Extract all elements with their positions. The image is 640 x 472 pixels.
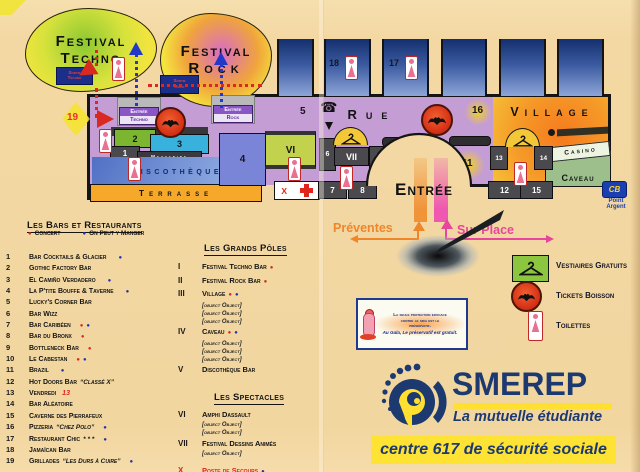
pole-name: Caveau xyxy=(202,326,225,339)
bar-number: 9 xyxy=(6,343,21,352)
bar-number: 12 xyxy=(6,377,21,386)
concert-dot-icon: ● xyxy=(76,357,80,363)
bar-name: Bottleneck Bar xyxy=(29,345,79,352)
poles-list: I Festival Techno Bar ● II Festival Rock… xyxy=(178,261,328,377)
bar-list-item: 2 Gothic Factory Bar xyxy=(6,263,178,274)
bar-list-item: 11 Brazil ● xyxy=(6,365,178,376)
entree-rock-sign: Entrée Rock xyxy=(213,105,253,123)
spectacles-title: Les Spectacles xyxy=(214,392,284,405)
manger-dot-icon: ● xyxy=(234,327,238,340)
edge-shade xyxy=(630,0,640,472)
bar-list-item: 19 Grillades “Les Durs à Cuire” ● xyxy=(6,456,178,467)
sticker-line4: Au Gala, Le préservatif est gratuit. xyxy=(376,329,464,336)
entree-label: Entrée xyxy=(381,180,467,200)
manger-dot-icon: ● xyxy=(82,231,86,237)
entree-techno-line2: Techno xyxy=(120,116,158,124)
condom-mascot-icon xyxy=(360,307,376,341)
cb-card-icon: CB xyxy=(602,181,627,198)
bar-note-red: 13 xyxy=(62,390,70,397)
spectacle-sub-list: [object Object][object Object] xyxy=(178,421,328,437)
prevention-sticker: La seule protection efficace contre le s… xyxy=(356,298,468,350)
toilets-figure-icon xyxy=(528,311,543,341)
bar-note: “Chez Polo” xyxy=(56,424,94,431)
entry-path-techno xyxy=(135,54,138,106)
manger-legend-label: On Peut y Manger xyxy=(89,230,144,237)
pole-sub-item: [object Object] xyxy=(202,310,328,318)
bar-number: 15 xyxy=(6,411,21,420)
bar-number: 16 xyxy=(6,422,21,431)
spectacle-numeral: VII xyxy=(178,438,202,451)
spectacle-sub-item: [object Object] xyxy=(202,450,328,458)
concert-dot-icon: ● xyxy=(88,346,92,352)
preventes-line-arrow-icon xyxy=(350,235,358,243)
pole-item: V Discothèque Bar xyxy=(178,364,328,377)
pole-item: III Village ● ● [object Object][object O… xyxy=(178,288,328,326)
surplace-line-arrow-icon xyxy=(546,235,554,243)
manger-dot-icon: ● xyxy=(235,289,239,302)
toilets-figure-icon xyxy=(340,166,353,190)
bar-number: 19 xyxy=(6,456,21,465)
bar-number: 18 xyxy=(6,445,21,454)
pole-sub-item: [object Object] xyxy=(202,356,328,364)
secours-item: X Poste de Secours ● xyxy=(178,465,328,472)
bar-note: * * * xyxy=(83,436,94,443)
bar-list-item: 8 Bar du Bronx ● xyxy=(6,331,178,342)
entree-techno-line1: Entrée xyxy=(120,108,158,116)
toilettes-label: Toilettes xyxy=(556,321,590,330)
smerep-banner: centre 617 de sécurité sociale xyxy=(371,436,616,464)
pole-numeral: II xyxy=(178,275,202,288)
concert-dot-icon: ● xyxy=(81,334,85,340)
vestiaires-label: Vestiaires Gratuits xyxy=(556,261,627,270)
secours-numeral: X xyxy=(178,465,202,472)
manger-dot-icon: ● xyxy=(103,437,107,443)
poles-title: Les Grands Pôles xyxy=(204,243,287,256)
manger-dot-icon: ● xyxy=(130,459,134,465)
pole-numeral: I xyxy=(178,261,202,274)
spectacle-name: Festival Dessins Animés xyxy=(202,438,276,451)
festival-flyer: 18 17 Caveau Casino 2 3 1 Mezzanine Disc… xyxy=(0,0,640,472)
ink-blob-pointer xyxy=(392,206,507,278)
concert-dot-icon: ● xyxy=(228,327,232,340)
spectacle-item: VII Festival Dessins Animés [object Obje… xyxy=(178,438,328,459)
bar-name: Jamaïcan Bar xyxy=(29,447,71,454)
spectacle-sub-list: [object Object] xyxy=(178,450,328,458)
spectacle-sub-item: [object Object] xyxy=(202,421,328,429)
fold-crease xyxy=(319,0,324,472)
concert-dot-icon: ● xyxy=(264,276,268,289)
entry-arrow-techno-icon xyxy=(129,42,143,55)
smerep-logo-icon xyxy=(376,363,450,437)
concert-dot-icon: ● xyxy=(270,262,274,275)
poles-section: Les Grands Pôles I Festival Techno Bar ●… xyxy=(178,238,328,472)
exit-arrow-icon xyxy=(97,110,114,128)
spectacle-numeral: VI xyxy=(178,409,202,422)
pole-name: Village xyxy=(202,288,225,301)
bar-list-item: 9 Bottleneck Bar ● xyxy=(6,343,178,354)
bar-name: Vendredi xyxy=(29,390,56,397)
manger-dot-icon: ● xyxy=(108,278,112,284)
pole-sub-item: [object Object] xyxy=(202,318,328,326)
manger-dot-icon: ● xyxy=(261,466,265,472)
bar-name: Caverne des Pierrafeux xyxy=(29,413,102,420)
drink-token-icon xyxy=(155,107,186,138)
bar-name: Restaurant Chic xyxy=(29,436,80,443)
toilets-figure-icon xyxy=(112,57,125,81)
pole-name: Festival Techno Bar xyxy=(202,261,267,274)
bar-list-item: 17 Restaurant Chic * * * ● xyxy=(6,434,178,445)
bar-list-item: 14 Bar Aléatoire xyxy=(6,399,178,410)
bar-number: 6 xyxy=(6,309,21,318)
smerep-banner-text: centre 617 de sécurité sociale xyxy=(380,441,607,459)
pole-sub-list: [object Object][object Object][object Ob… xyxy=(178,340,328,365)
bar-list-item: 10 Le Cabestan ● ● xyxy=(6,354,178,365)
bar-list-item: 3 El Camiño Verdadero ● xyxy=(6,275,178,286)
bar-list-item: 4 La P'tite Bouffe & Taverne ● xyxy=(6,286,178,297)
spectacle-item: VI Amphi Dassault [object Object][object… xyxy=(178,409,328,438)
preventes-label: Préventes xyxy=(333,221,393,235)
manger-dot-icon: ● xyxy=(86,323,90,329)
concert-legend-label: Concert xyxy=(35,230,61,237)
bar-list-item: 12 Hot Doors Bar “Classé X” xyxy=(6,377,178,388)
pole-sub-item: [object Object] xyxy=(202,348,328,356)
concert-dot-icon: ● xyxy=(228,289,232,302)
pole-numeral: V xyxy=(178,364,202,377)
bar-number: 10 xyxy=(6,354,21,363)
toilets-figure-icon xyxy=(288,157,301,181)
smerep-tagline: La mutuelle étudiante xyxy=(453,409,602,425)
bar-list-item: 13 Vendredi 13 xyxy=(6,388,178,399)
bar-name: Pizzeria xyxy=(29,424,53,431)
entry-arrow-rock-icon xyxy=(214,52,228,65)
spectacle-name: Amphi Dassault xyxy=(202,409,251,422)
spectacles-list: VI Amphi Dassault [object Object][object… xyxy=(178,409,328,459)
toilets-figure-icon xyxy=(514,162,527,186)
bar-list-item: 18 Jamaïcan Bar xyxy=(6,445,178,456)
bar-name: Bar Caribéen xyxy=(29,322,71,329)
exit-path-h xyxy=(148,84,262,87)
pole-sub-list: [object Object][object Object][object Ob… xyxy=(178,302,328,327)
sticker-text: La seule protection efficace contre le s… xyxy=(376,312,464,336)
bar-number: 7 xyxy=(6,320,21,329)
bar-list-item: 5 Lucky's Corner Bar xyxy=(6,297,178,308)
bar-number: 13 xyxy=(6,388,21,397)
cb-label: CB xyxy=(609,185,621,194)
bar-name: La P'tite Bouffe & Taverne xyxy=(29,288,114,295)
manger-dot-icon: ● xyxy=(103,425,107,431)
bar-name: Grillades xyxy=(29,458,59,465)
entree-techno-sign: Entrée Techno xyxy=(119,107,159,125)
bar-list-item: 7 Bar Caribéen ● ● xyxy=(6,320,178,331)
toilets-figure-icon xyxy=(128,157,141,181)
bar-list-item: 6 Bar Wizz xyxy=(6,309,178,320)
pole-numeral: IV xyxy=(178,326,202,339)
bar-list-item: 15 Caverne des Pierrafeux xyxy=(6,411,178,422)
bar-name: El Camiño Verdadero xyxy=(29,277,96,284)
pole-numeral: III xyxy=(178,288,202,301)
toilets-figure-icon xyxy=(345,56,358,80)
bar-list-item: 16 Pizzeria “Chez Polo” ● xyxy=(6,422,178,433)
bar-number: 14 xyxy=(6,399,21,408)
bar-name: Lucky's Corner Bar xyxy=(29,299,92,306)
bar-name: Bar Wizz xyxy=(29,311,57,318)
bars-list: 1 Bar Cocktails & Glacier ● 2 Gothic Fac… xyxy=(6,252,178,468)
bar-name: Bar Aléatoire xyxy=(29,401,73,408)
drink-token-icon xyxy=(511,281,542,312)
pole-item: II Festival Rock Bar ● xyxy=(178,275,328,289)
bar-number: 17 xyxy=(6,434,21,443)
pole-item: I Festival Techno Bar ● xyxy=(178,261,328,275)
bar-name: Bar du Bronx xyxy=(29,333,72,340)
secours-name: Poste de Secours xyxy=(202,465,258,472)
bar-number: 4 xyxy=(6,286,21,295)
toilets-figure-icon xyxy=(99,129,112,153)
bar-name: Gothic Factory Bar xyxy=(29,265,91,272)
concert-dot-icon: ● xyxy=(80,323,84,329)
tickets-label: Tickets Boisson xyxy=(556,291,614,300)
bar-note: “Classé X” xyxy=(80,379,114,386)
bar-name: Brazil xyxy=(29,367,49,374)
manger-dot-icon: ● xyxy=(126,289,130,295)
bar-number: 5 xyxy=(6,297,21,306)
bar-number: 2 xyxy=(6,263,21,272)
room-19: 19 xyxy=(67,112,78,123)
bar-number: 1 xyxy=(6,252,21,261)
entree-rock-line2: Rock xyxy=(214,114,252,122)
bar-name: Bar Cocktails & Glacier xyxy=(29,254,106,261)
bar-note: “Les Durs à Cuire” xyxy=(62,458,120,465)
drink-token-icon xyxy=(421,104,453,136)
manger-dot-icon: ● xyxy=(61,368,65,374)
pole-item: IV Caveau ● ● [object Object][object Obj… xyxy=(178,326,328,364)
bar-name: Le Cabestan xyxy=(29,356,67,363)
bars-legend: ● Concert ● On Peut y Manger xyxy=(28,230,144,237)
point-argent-label2: Argent xyxy=(601,204,631,210)
manger-dot-icon: ● xyxy=(118,255,122,261)
toilets-figure-icon xyxy=(405,56,418,80)
festival-techno-line1: Festival xyxy=(56,33,127,50)
smerep-name: SMEREP xyxy=(452,366,587,403)
pole-sub-item: [object Object] xyxy=(202,302,328,310)
hanger-icon xyxy=(519,261,543,276)
pole-name: Discothèque Bar xyxy=(202,364,255,377)
bar-number: 3 xyxy=(6,275,21,284)
pole-name: Festival Rock Bar xyxy=(202,275,261,288)
cloakroom-legend-icon xyxy=(512,255,549,282)
bar-list-item: 1 Bar Cocktails & Glacier ● xyxy=(6,252,178,263)
spectacle-sub-item: [object Object] xyxy=(202,429,328,437)
manger-dot-icon: ● xyxy=(83,357,87,363)
bar-name: Hot Doors Bar xyxy=(29,379,77,386)
pole-sub-item: [object Object] xyxy=(202,340,328,348)
concert-dot-icon: ● xyxy=(28,231,32,237)
bar-number: 11 xyxy=(6,365,21,374)
bar-number: 8 xyxy=(6,331,21,340)
exit-path-v1 xyxy=(95,50,98,66)
